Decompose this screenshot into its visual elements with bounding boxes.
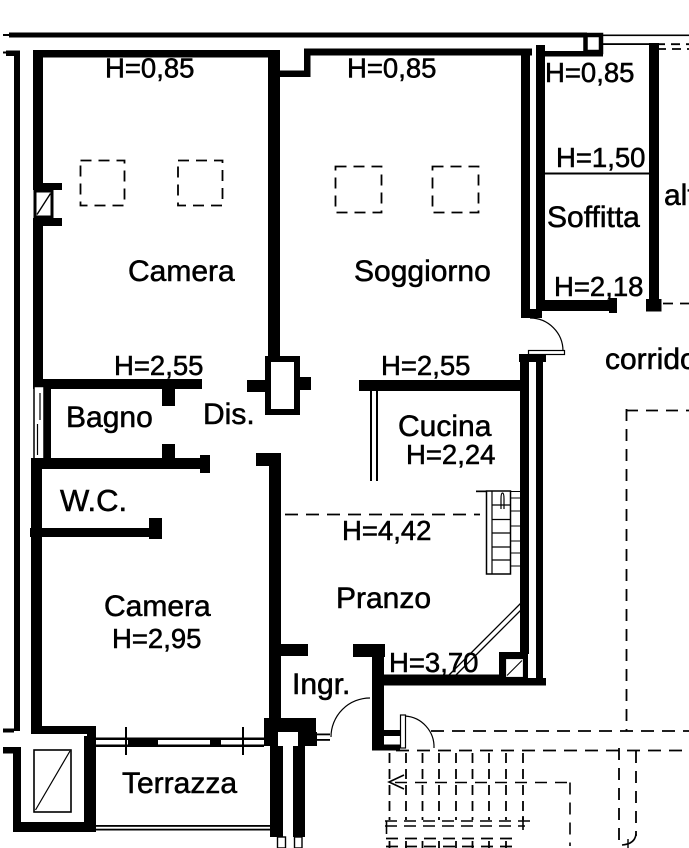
svg-text:Ingr.: Ingr. (292, 668, 350, 701)
svg-text:H=0,85: H=0,85 (545, 57, 634, 88)
svg-text:Pranzo: Pranzo (336, 582, 431, 615)
svg-text:H=2,24: H=2,24 (406, 439, 495, 470)
svg-text:H=2,18: H=2,18 (554, 271, 643, 302)
svg-text:Camera: Camera (128, 255, 235, 288)
svg-text:W.C.: W.C. (60, 483, 127, 518)
svg-text:H=0,85: H=0,85 (347, 53, 436, 84)
svg-text:H=1,50: H=1,50 (556, 142, 645, 173)
svg-text:Bagno: Bagno (66, 401, 153, 434)
svg-text:Soffitta: Soffitta (547, 201, 640, 234)
svg-text:alta: alta (664, 179, 689, 212)
svg-text:Dis.: Dis. (203, 398, 255, 431)
svg-text:Soggiorno: Soggiorno (354, 255, 491, 288)
svg-text:H=2,55: H=2,55 (114, 350, 203, 381)
svg-text:corridoio: corridoio (605, 343, 689, 376)
svg-text:H=0,85: H=0,85 (105, 53, 194, 84)
svg-text:H=4,42: H=4,42 (342, 515, 431, 546)
svg-text:Terrazza: Terrazza (122, 767, 237, 800)
svg-text:H=2,55: H=2,55 (381, 350, 470, 381)
svg-text:H=2,95: H=2,95 (112, 623, 201, 654)
svg-text:Camera: Camera (104, 590, 211, 623)
svg-text:H=3,70: H=3,70 (389, 647, 478, 678)
